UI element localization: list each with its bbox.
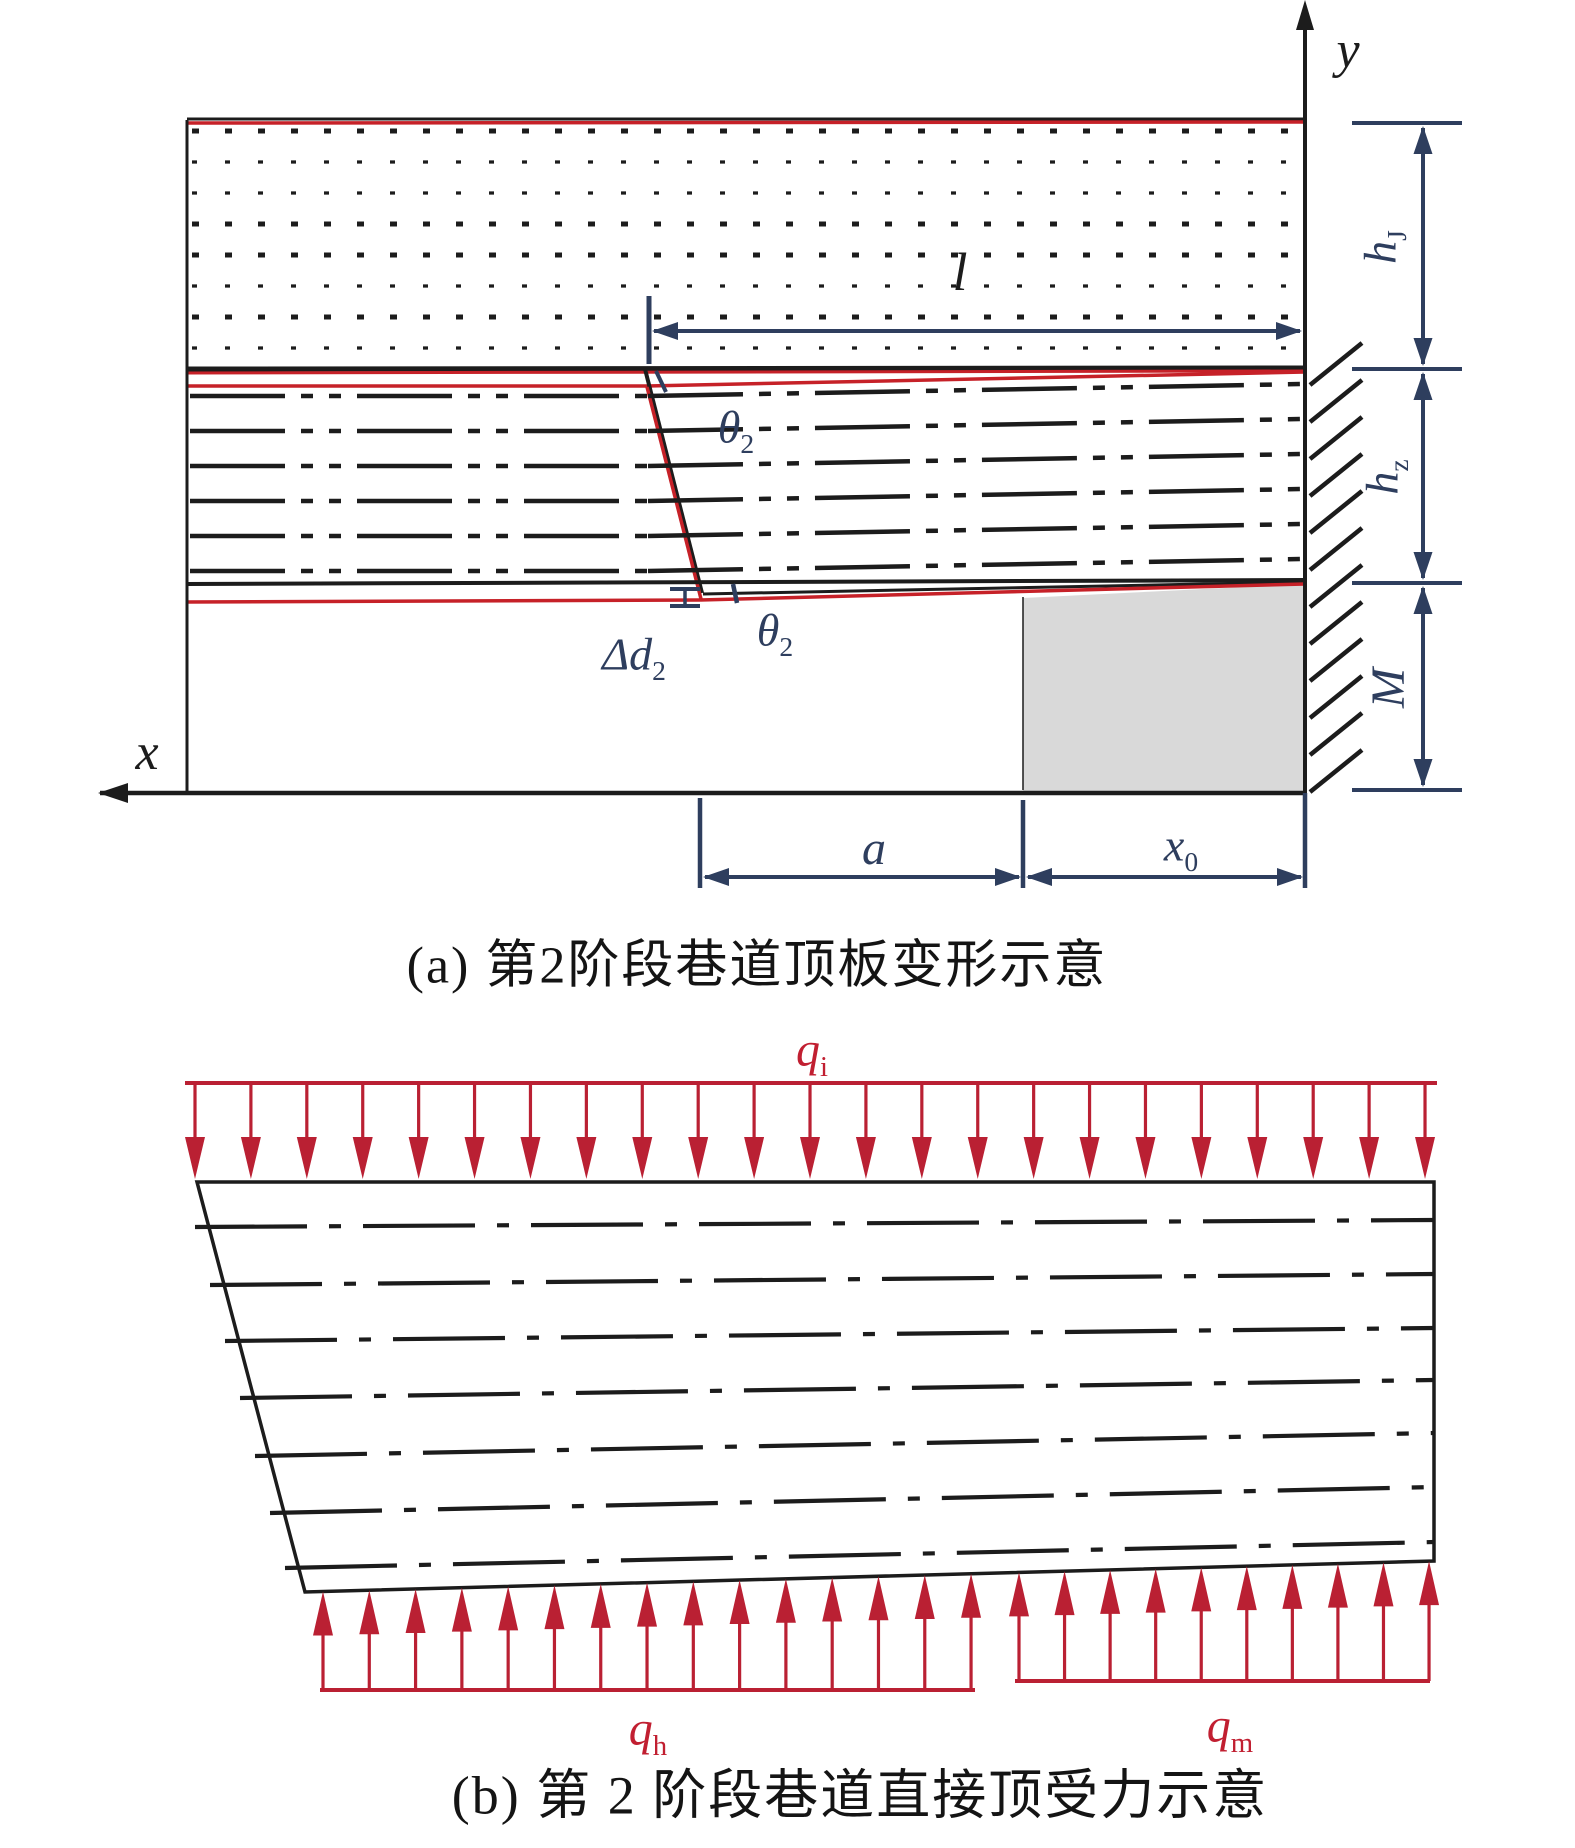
- m-dimension-label: M: [1365, 668, 1413, 708]
- caption-figure-a: (a) 第2阶段巷道顶板变形示意: [407, 923, 1108, 998]
- a-dimension-label: a: [862, 825, 886, 873]
- hj-dimension-label: hJ: [1358, 230, 1411, 264]
- hz-dimension-label: hz: [1360, 459, 1413, 494]
- qm-load-label: qm: [1207, 1702, 1253, 1757]
- l-dimension-label: l: [952, 245, 967, 299]
- paper-figure-page: y x l θ2 Δd2 θ2 a x0 hJ hz M (a) 第2阶段巷道顶…: [0, 0, 1575, 1848]
- theta2-upper-label: θ2: [718, 405, 754, 458]
- qi-load-label: qi: [796, 1026, 828, 1081]
- delta-d2-label: Δd2: [602, 632, 666, 685]
- x-axis-label: x: [135, 727, 158, 779]
- theta2-lower-label: θ2: [757, 608, 793, 661]
- caption-figure-b: (b) 第 2 阶段巷道直接顶受力示意: [452, 1751, 1268, 1830]
- y-axis-label: y: [1336, 25, 1359, 77]
- x0-dimension-label: x0: [1164, 823, 1198, 876]
